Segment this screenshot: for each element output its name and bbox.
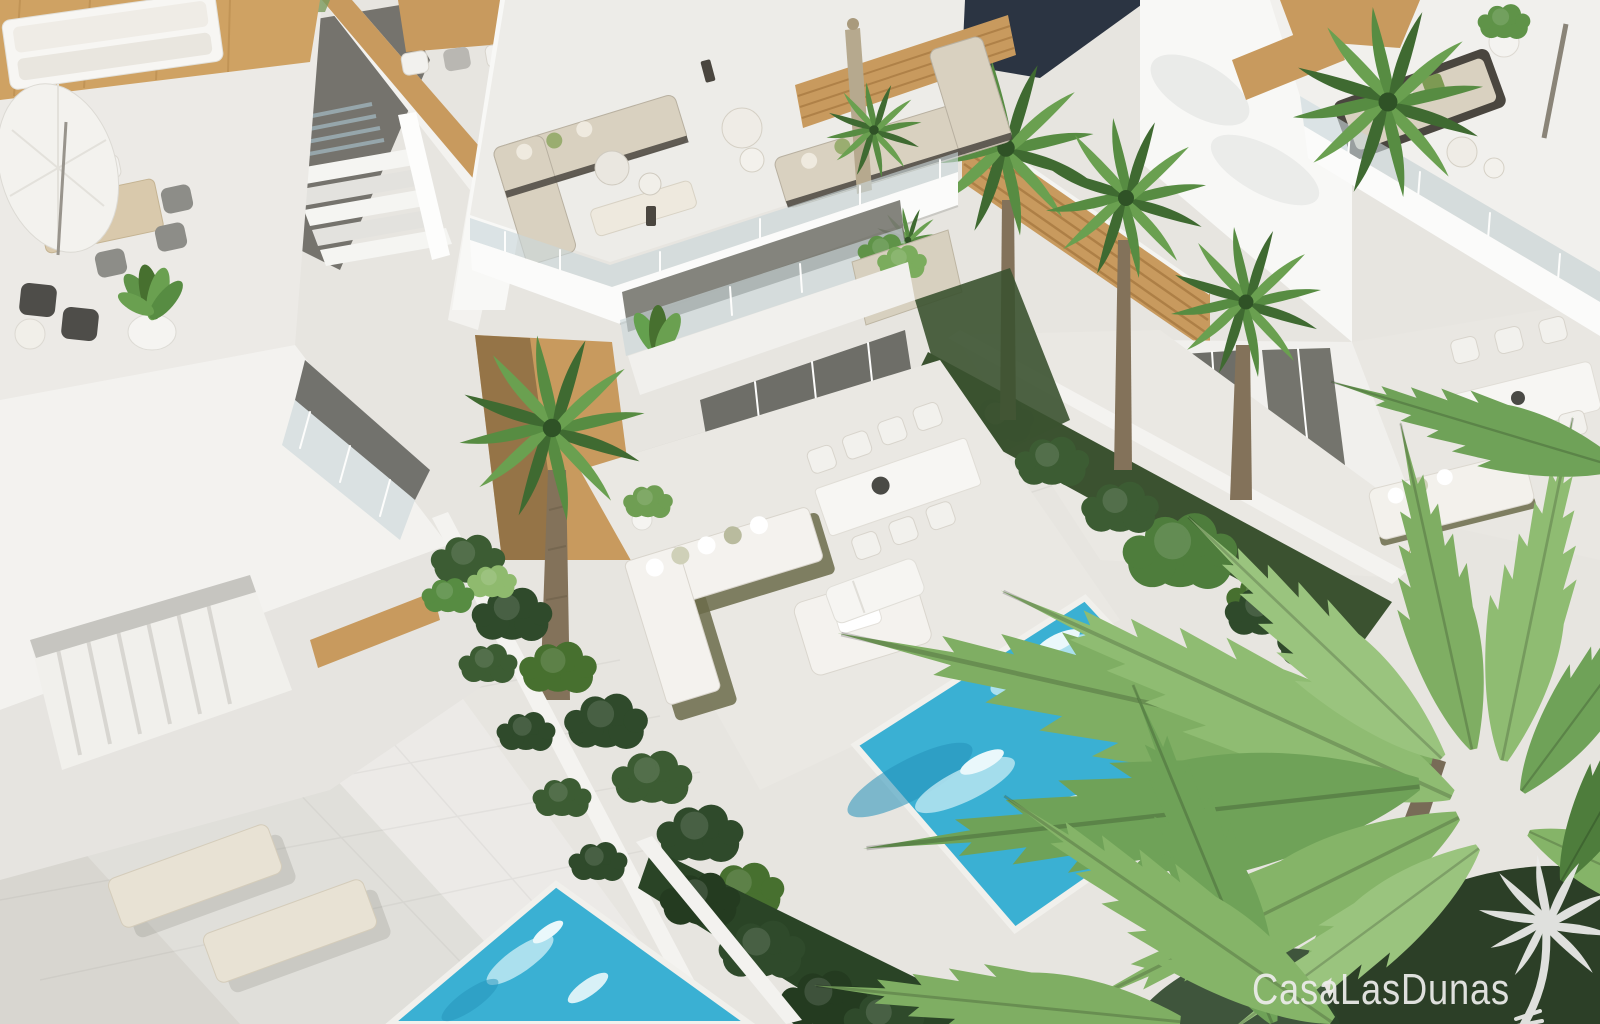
render-image: CasaLasDunas	[0, 0, 1600, 1024]
side-table	[1484, 158, 1504, 178]
brand-name: CasaLasDunas	[1252, 965, 1510, 1014]
side-table	[1447, 137, 1477, 167]
